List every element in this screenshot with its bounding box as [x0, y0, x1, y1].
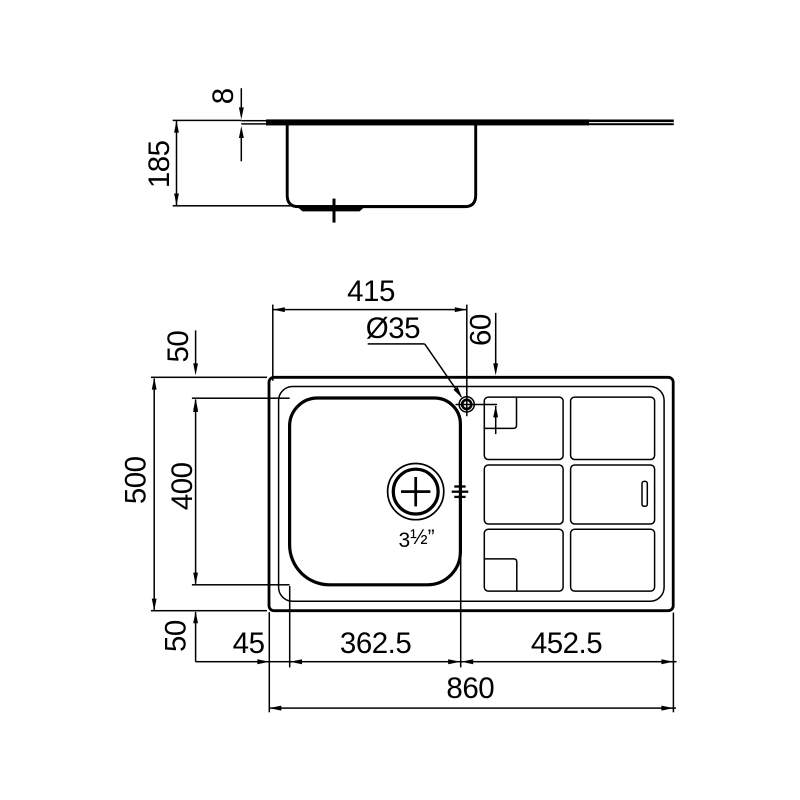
svg-text:50: 50 [159, 620, 192, 652]
svg-text:185: 185 [143, 140, 176, 188]
svg-text:400: 400 [166, 462, 199, 510]
svg-text:60: 60 [464, 314, 497, 346]
svg-text:500: 500 [120, 456, 153, 504]
svg-text:362.5: 362.5 [340, 627, 411, 660]
svg-text:8: 8 [207, 88, 240, 104]
svg-text:452.5: 452.5 [531, 627, 602, 660]
svg-text:50: 50 [162, 331, 195, 363]
svg-text:Ø35: Ø35 [366, 312, 420, 345]
svg-text:860: 860 [446, 672, 494, 705]
svg-text:45: 45 [233, 627, 265, 660]
svg-text:3½”: 3½” [398, 526, 434, 553]
svg-text:415: 415 [347, 275, 395, 308]
